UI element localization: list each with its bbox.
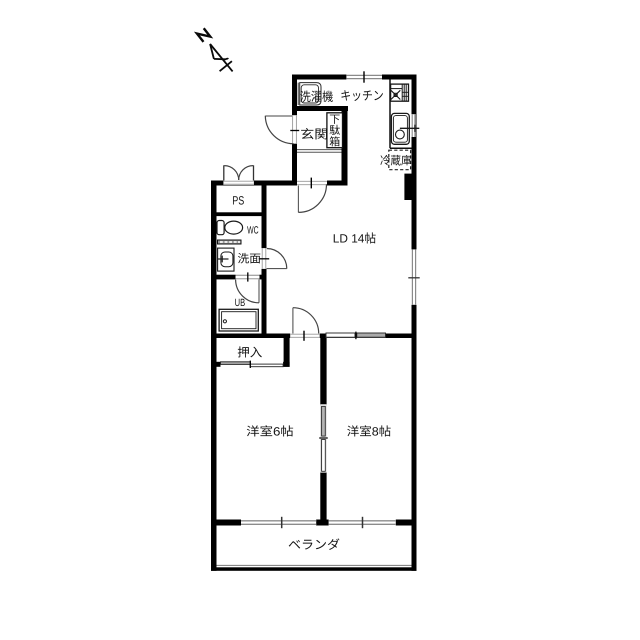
svg-text:洗濯機: 洗濯機 bbox=[300, 90, 334, 104]
svg-text:洗面: 洗面 bbox=[238, 253, 262, 266]
svg-text:押入: 押入 bbox=[237, 345, 262, 359]
svg-text:キッチン: キッチン bbox=[340, 89, 384, 103]
svg-text:箱: 箱 bbox=[329, 136, 340, 149]
svg-text:LD 14帖: LD 14帖 bbox=[333, 232, 377, 246]
svg-text:冷蔵庫: 冷蔵庫 bbox=[380, 155, 412, 168]
svg-text:駄: 駄 bbox=[329, 124, 340, 137]
svg-text:下: 下 bbox=[329, 114, 340, 126]
svg-text:玄関: 玄関 bbox=[300, 128, 328, 142]
svg-text:ベランダ: ベランダ bbox=[288, 538, 340, 552]
svg-text:PS: PS bbox=[232, 194, 244, 208]
svg-text:洋室8帖: 洋室8帖 bbox=[347, 425, 392, 439]
svg-text:WC: WC bbox=[247, 224, 259, 236]
svg-text:洋室6帖: 洋室6帖 bbox=[246, 425, 294, 439]
svg-text:UB: UB bbox=[235, 297, 246, 309]
